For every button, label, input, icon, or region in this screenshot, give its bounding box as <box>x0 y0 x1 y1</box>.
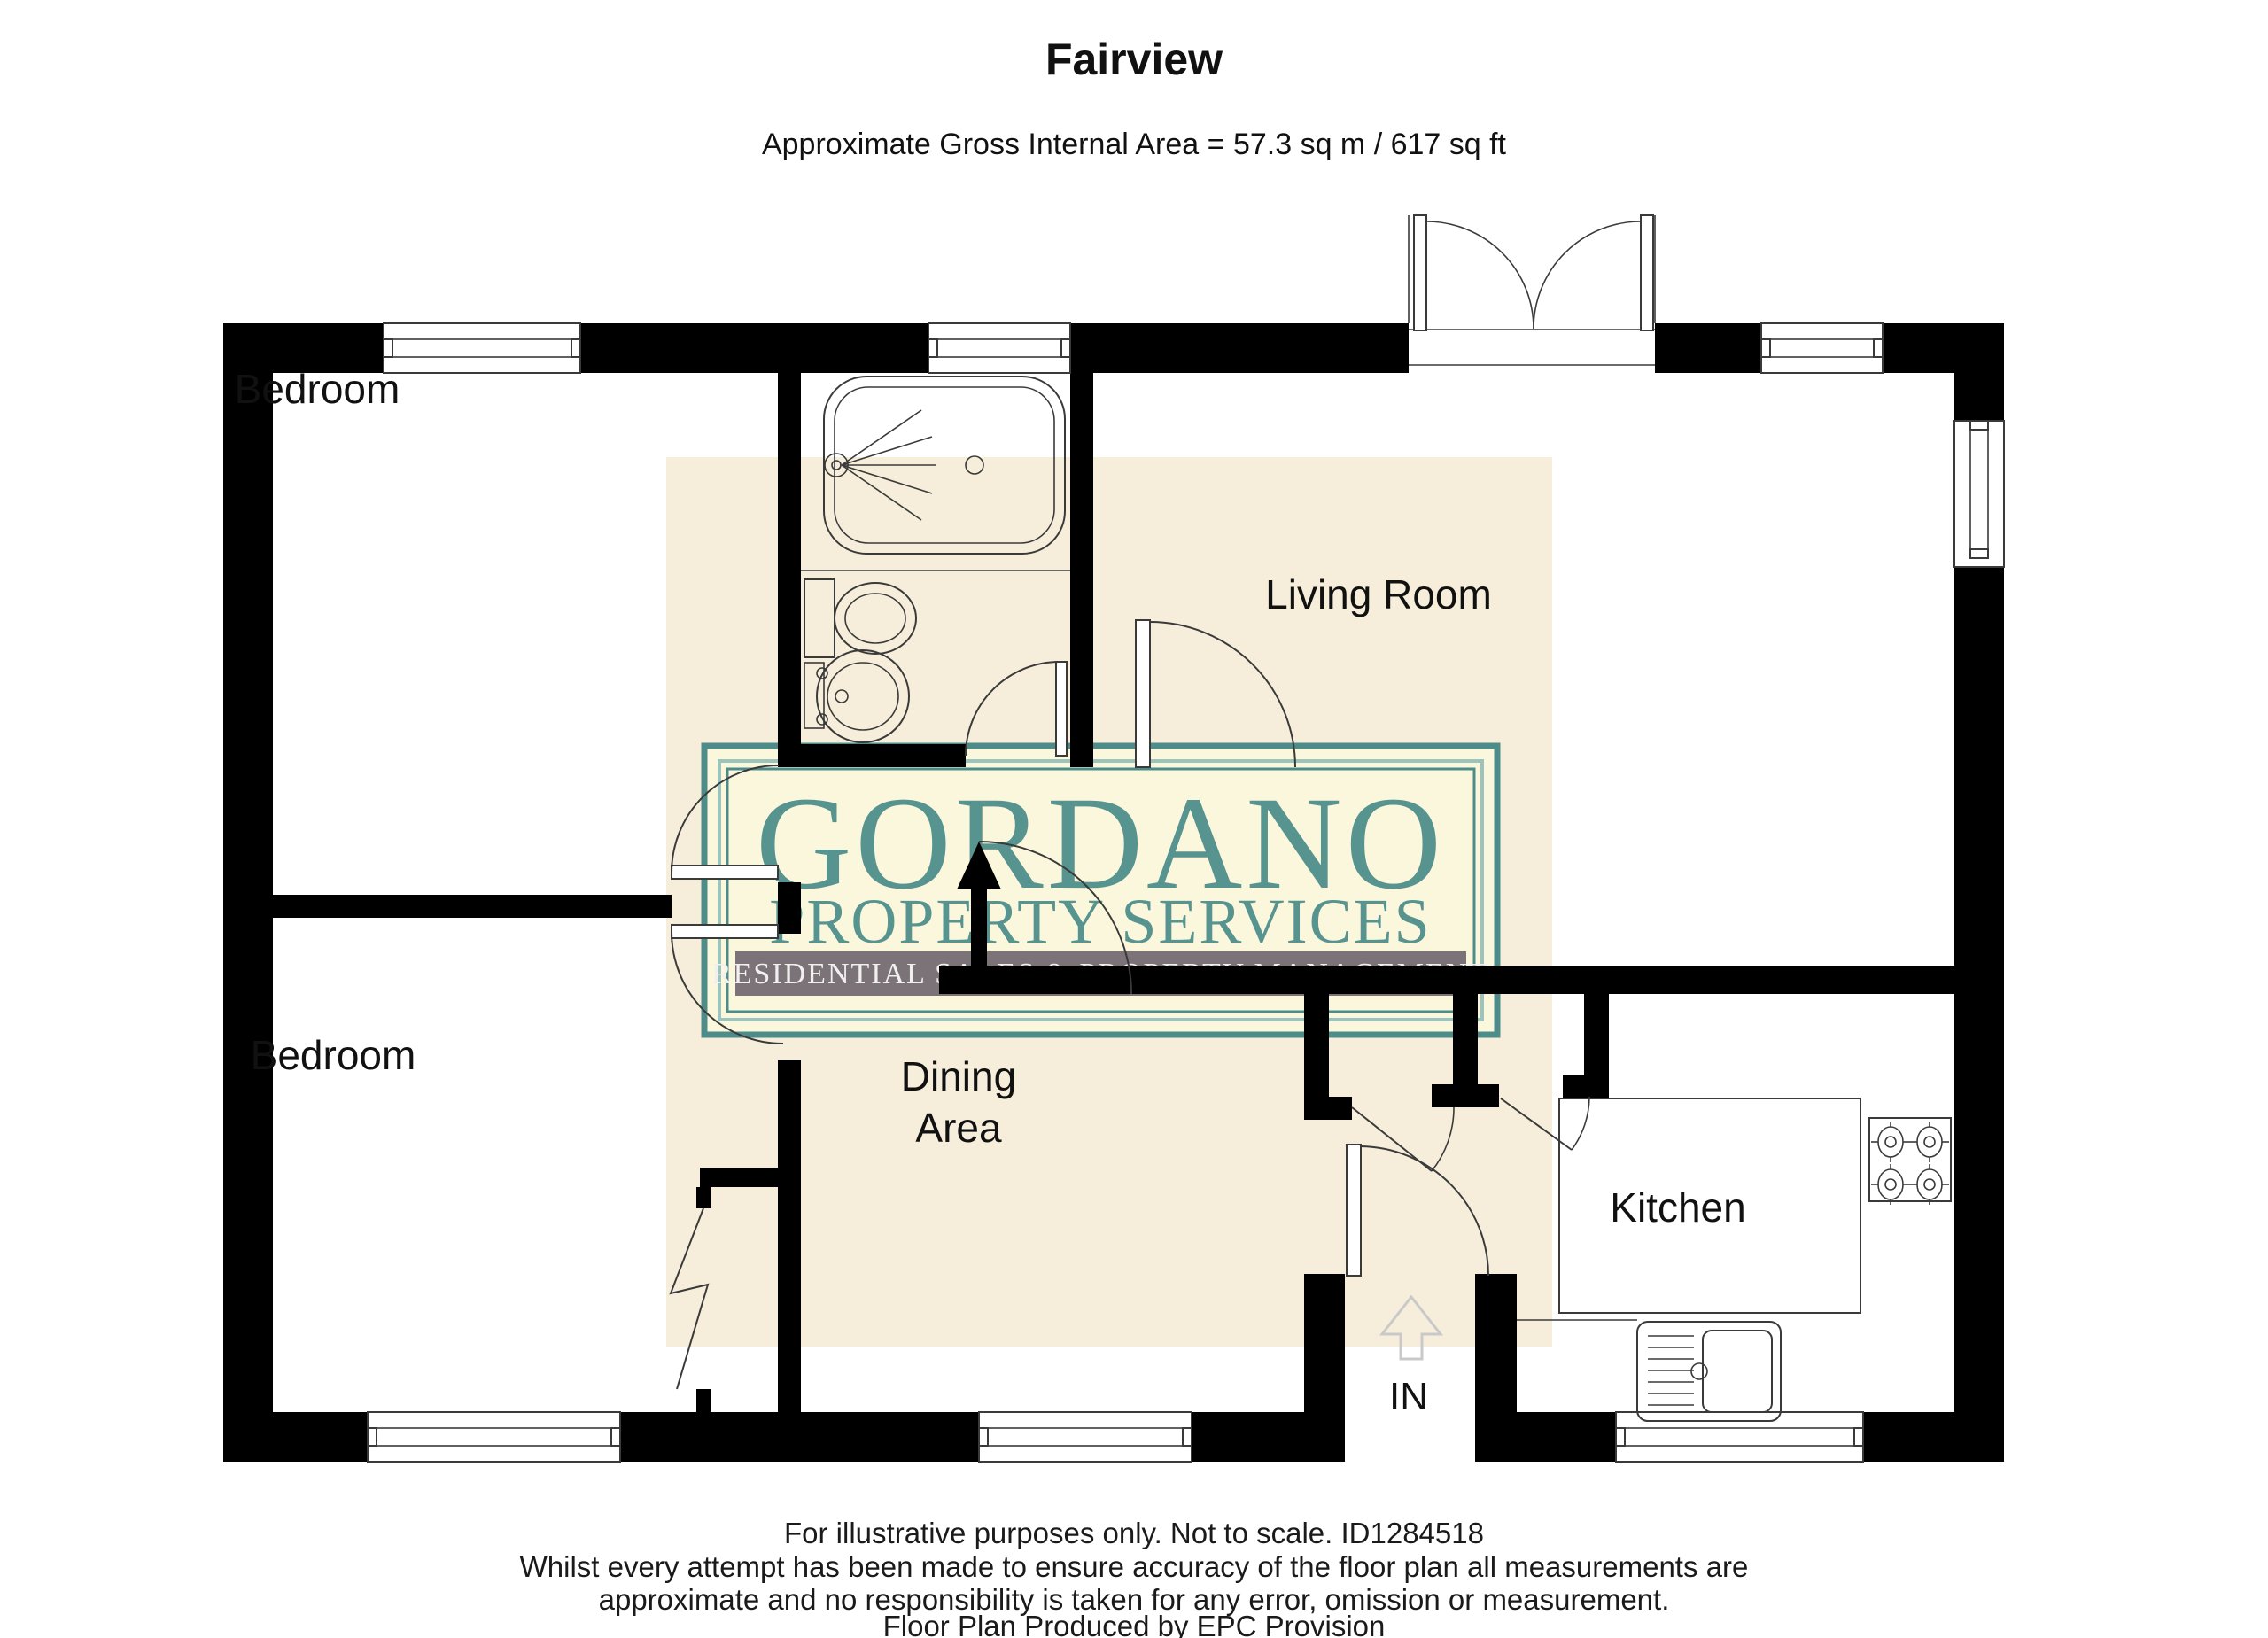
logo-tagline-text: PROPERTY SERVICES <box>769 886 1431 957</box>
sink-unit <box>1637 1322 1781 1421</box>
sink-tap <box>1691 1363 1707 1379</box>
vestibule-stub-c-foot <box>1563 1075 1584 1098</box>
footer-line-4: Floor Plan Produced by EPC Provision <box>883 1610 1386 1638</box>
hob <box>1869 1118 1951 1205</box>
bedroom2-right-wall <box>778 1060 801 1412</box>
wall-bottom-2 <box>620 1412 979 1462</box>
dining-label-line2: Area <box>915 1105 1002 1151</box>
entrance-door-leaf-left <box>1414 215 1426 330</box>
wall-top-2 <box>580 323 928 373</box>
floorplan-canvas: Fairview Approximate Gross Internal Area… <box>0 0 2268 1638</box>
window-living-room-top <box>1761 323 1883 373</box>
wall-bottom-3 <box>1192 1412 1345 1462</box>
window-kitchen <box>1616 1412 1863 1462</box>
wall-bottom-4 <box>1475 1412 1616 1462</box>
wall-top-3 <box>1070 323 1409 373</box>
living-room-label: Living Room <box>1265 571 1492 617</box>
entrance-label: IN <box>1389 1375 1428 1418</box>
vestibule-stub-b-foot-left <box>1432 1084 1453 1107</box>
wardrobe-stub-wall <box>700 1168 778 1187</box>
window-bathroom <box>928 323 1070 373</box>
wall-right-1 <box>1954 373 2004 421</box>
hob-burner-3 <box>1871 1164 1910 1205</box>
header: Fairview Approximate Gross Internal Area… <box>762 35 1507 161</box>
wardrobe-jamb-bottom <box>696 1389 711 1412</box>
footer-disclaimer: For illustrative purposes only. Not to s… <box>520 1517 1749 1638</box>
footer-line-1: For illustrative purposes only. Not to s… <box>784 1517 1484 1549</box>
wall-bottom-1 <box>223 1412 368 1462</box>
vestibule-stub-c <box>1584 994 1609 1098</box>
bathroom-right-wall <box>1070 373 1093 767</box>
window-bedroom-top <box>384 323 580 373</box>
front-door-pier-left <box>1304 1274 1345 1412</box>
wall-left <box>223 323 273 1462</box>
entrance-double-doors <box>1409 215 1655 365</box>
bedroom-divider-endblock <box>778 882 801 934</box>
page-title: Fairview <box>1045 35 1223 84</box>
window-dining <box>979 1412 1192 1462</box>
hob-burner-1 <box>1871 1122 1910 1162</box>
bedroom-top-label: Bedroom <box>235 366 400 412</box>
living-room-bottom-wall <box>939 966 1954 994</box>
wardrobe-jamb-top <box>696 1187 711 1208</box>
front-door-pier-right <box>1475 1274 1517 1412</box>
kitchen-label: Kitchen <box>1610 1184 1745 1230</box>
dining-label-line1: Dining <box>901 1053 1016 1099</box>
entrance-door-leaf-right <box>1641 215 1653 330</box>
window-bedroom-bottom <box>368 1412 620 1462</box>
vestibule-stub-b-foot-right <box>1478 1084 1499 1107</box>
vestibule-stub-a-foot <box>1329 1097 1352 1120</box>
window-living-room-right <box>1954 421 2004 567</box>
vestibule-stub-a <box>1304 994 1329 1120</box>
kitchen-fixtures <box>1517 1098 1951 1421</box>
area-subtitle: Approximate Gross Internal Area = 57.3 s… <box>762 128 1507 161</box>
wall-bottom-5 <box>1863 1412 2004 1462</box>
door-direction-arrow-shaft <box>971 889 987 994</box>
sink-bowl <box>1703 1331 1772 1412</box>
bedroom-bottom-label: Bedroom <box>251 1032 416 1078</box>
bathroom-left-wall <box>778 373 801 767</box>
footer-line-2: Whilst every attempt has been made to en… <box>520 1550 1749 1583</box>
vestibule-stub-b <box>1453 994 1478 1107</box>
bathroom-bottom-wall <box>778 744 966 767</box>
hob-burner-2 <box>1910 1122 1949 1162</box>
wall-right-2 <box>1954 567 2004 1412</box>
wall-top-4 <box>1655 323 1761 373</box>
bedroom-divider-wall <box>273 895 672 918</box>
wall-top-5 <box>1883 323 2004 373</box>
hob-burner-4 <box>1910 1164 1949 1205</box>
